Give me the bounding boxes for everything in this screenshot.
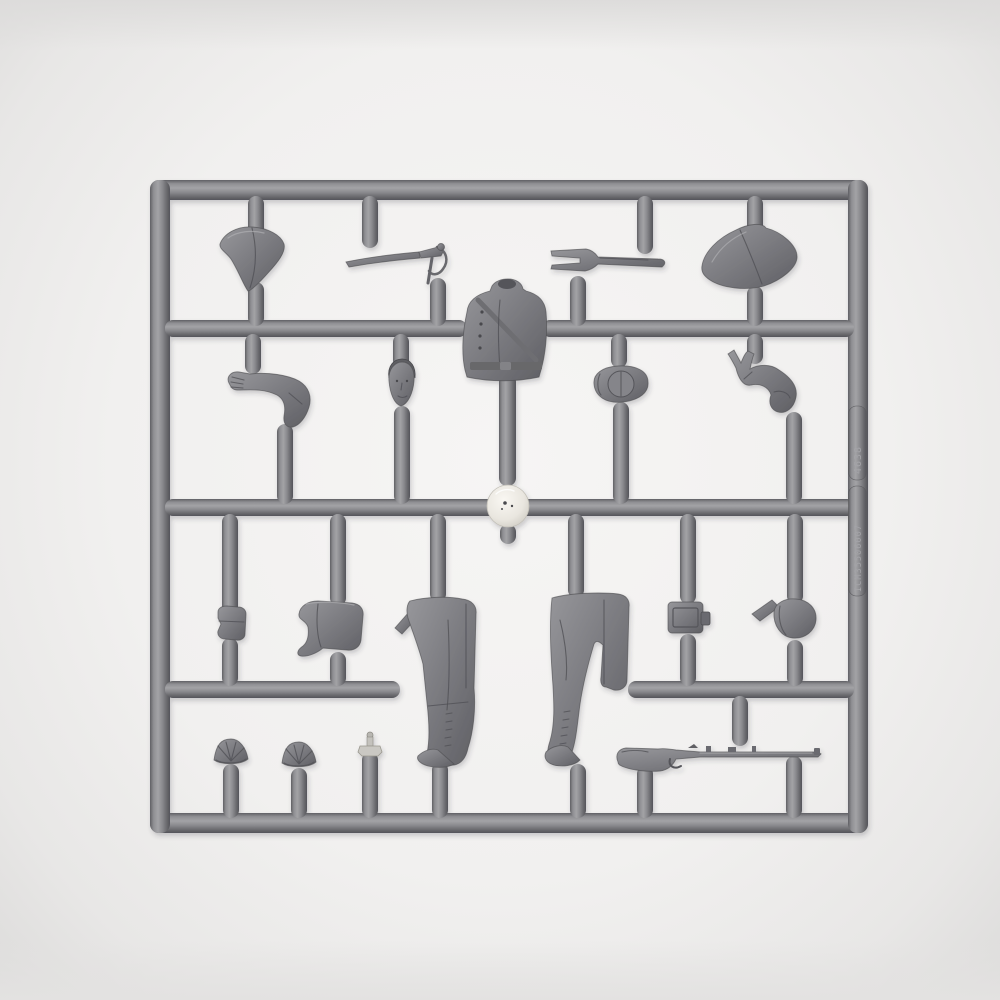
part-epaulette-left — [214, 739, 248, 764]
embossed-code-area: 4638 ICM35506007 — [849, 406, 867, 596]
stub — [394, 406, 410, 504]
part-epaulette-right — [282, 742, 316, 767]
part-head — [389, 359, 415, 406]
stub — [245, 334, 261, 374]
runner-row4-left — [165, 681, 400, 698]
stub — [637, 196, 653, 254]
part-visor-cap — [752, 599, 816, 638]
stub — [747, 286, 763, 326]
stub — [222, 638, 238, 686]
stub — [430, 514, 446, 602]
stub — [222, 514, 238, 614]
stub — [637, 766, 653, 818]
stub — [732, 696, 748, 746]
stub — [277, 424, 293, 504]
stub — [786, 756, 802, 818]
stub — [570, 276, 586, 326]
stub — [330, 652, 346, 686]
stub — [430, 278, 446, 326]
part-legs-standing — [395, 597, 476, 767]
stub — [362, 196, 378, 248]
part-torso — [463, 279, 547, 381]
part-saddle-flap — [298, 601, 363, 656]
stub — [223, 764, 239, 818]
stub — [787, 514, 803, 604]
stub — [568, 514, 584, 598]
stub — [611, 334, 627, 368]
stub — [786, 412, 802, 504]
runner-row2-right — [542, 320, 854, 337]
runner-row4-right — [628, 681, 854, 698]
sprue-photo-svg: 4638 ICM35506007 — [0, 0, 1000, 1000]
stub — [570, 764, 586, 818]
part-bicorne-hat-left — [220, 227, 284, 291]
part-left-arm — [228, 372, 310, 427]
stub — [362, 752, 378, 818]
stub — [330, 514, 346, 606]
part-round-cap — [594, 366, 648, 402]
embossed-code-upper: 4638 — [853, 446, 864, 474]
photo-stage: 4638 ICM35506007 — [0, 0, 1000, 1000]
stub — [680, 634, 696, 686]
frame-rail-bottom — [150, 813, 868, 833]
part-sabre — [346, 244, 446, 284]
runner-row2-left — [165, 320, 467, 337]
part-belt-pouch — [218, 606, 246, 640]
stub — [787, 640, 803, 686]
part-bicorne-hat-right — [702, 224, 797, 288]
part-legs-striding — [545, 593, 629, 766]
stub — [613, 402, 629, 504]
stub — [291, 768, 307, 818]
stub — [680, 514, 696, 604]
stub — [499, 374, 516, 486]
part-cartridge-box — [668, 602, 710, 633]
part-gate-node — [487, 485, 529, 527]
part-small-finial — [358, 732, 382, 756]
embossed-code-lower: ICM35506007 — [854, 524, 864, 592]
stub — [432, 762, 448, 818]
